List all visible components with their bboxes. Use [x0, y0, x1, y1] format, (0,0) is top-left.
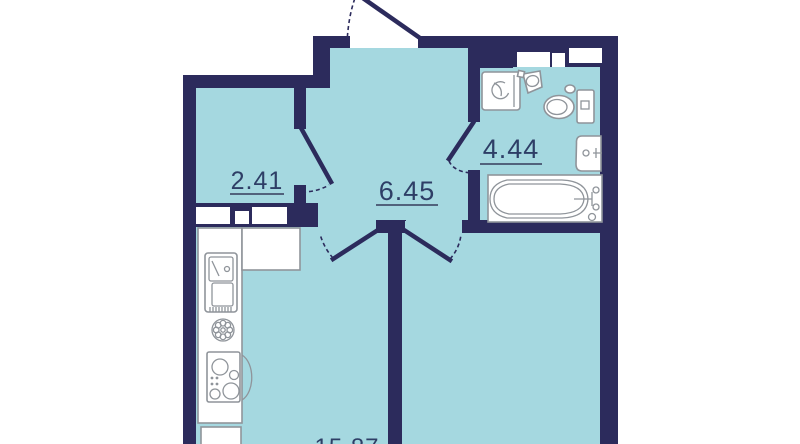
toilet-pipe [565, 85, 575, 93]
area-label-kitchen-living-clipped: 15.87 [314, 434, 379, 444]
vent-shaft [196, 207, 230, 224]
kitchen-doorway [318, 221, 376, 233]
toilet-bowl [544, 96, 574, 119]
bathroom-duct-block [480, 48, 513, 68]
stove-knob [211, 383, 214, 386]
vanity-sink [576, 136, 602, 171]
vent-shaft [569, 48, 602, 63]
bathroom-left-wall-lower [468, 170, 480, 233]
outer-wall-right [600, 36, 618, 444]
floor-plan-canvas: 2.41 6.45 4.44 15.87 [0, 0, 800, 444]
outer-wall-top-wardrobe [183, 75, 330, 88]
outer-wall-top-entry-left [313, 36, 350, 48]
hand-sink-tap [517, 70, 524, 77]
area-label-hallway: 6.45 [379, 176, 436, 206]
bathtub [488, 175, 602, 222]
bathroom-left-wall-upper [468, 48, 480, 122]
area-label-wardrobe: 2.41 [231, 167, 284, 195]
living-room-doorway [405, 221, 462, 233]
living-room-floor [402, 233, 600, 444]
toilet-tank [577, 90, 594, 123]
stove-knob [216, 377, 219, 380]
kitchen-sink-unit [205, 253, 237, 312]
stove-knob [216, 383, 219, 386]
floor-plan-drawing: 2.41 6.45 4.44 15.87 [0, 0, 800, 444]
kitchen-counter-corner [242, 228, 300, 270]
outer-wall-top-entry-right [418, 36, 600, 48]
hallway-floor-upper [330, 48, 468, 88]
base-cabinet [201, 427, 241, 444]
kitchen-living-divider-wall [388, 227, 402, 444]
wardrobe-wall-lower-stub [294, 185, 306, 205]
vent-shaft [235, 211, 249, 224]
outer-wall-left [183, 75, 196, 444]
wardrobe-wall-upper-stub [294, 88, 306, 129]
vent-shaft [517, 52, 550, 67]
washing-machine [482, 72, 520, 110]
vent-shaft [552, 53, 565, 67]
area-label-bathroom: 4.44 [483, 134, 540, 164]
entry-door-leaf [357, 0, 420, 38]
stove-knob [211, 377, 214, 380]
cooktop-stove [207, 352, 240, 402]
vent-shaft [252, 207, 287, 224]
